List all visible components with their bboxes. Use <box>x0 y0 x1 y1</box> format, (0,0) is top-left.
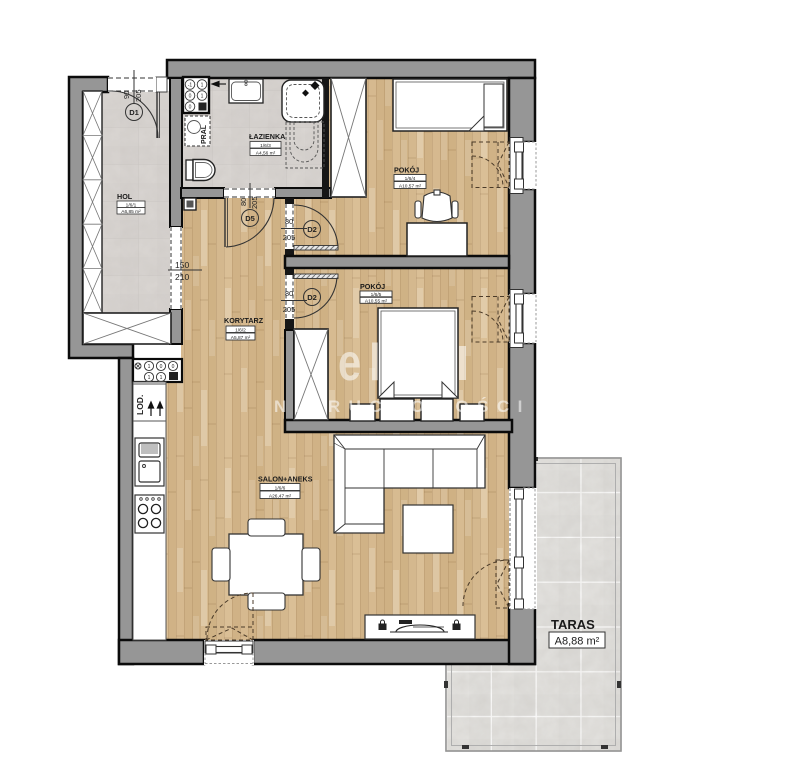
svg-text:0: 0 <box>189 94 192 100</box>
svg-text:D2: D2 <box>307 293 317 302</box>
svg-text:D2: D2 <box>307 225 317 234</box>
svg-text:210: 210 <box>175 272 189 282</box>
svg-text:HOL: HOL <box>117 192 133 201</box>
svg-text:1: 1 <box>148 364 151 370</box>
svg-text:POKÓJ: POKÓJ <box>394 166 419 175</box>
svg-text:NIERUCHOMOŚCI: NIERUCHOMOŚCI <box>274 397 531 416</box>
svg-text:D1: D1 <box>129 108 139 117</box>
svg-text:PRAL: PRAL <box>201 124 208 144</box>
svg-text:KORYTARZ: KORYTARZ <box>224 316 264 325</box>
svg-text:205: 205 <box>283 233 296 242</box>
svg-text:LOD.: LOD. <box>135 395 145 415</box>
svg-text:80: 80 <box>239 198 248 206</box>
svg-text:A26,47 m²: A26,47 m² <box>269 493 292 499</box>
svg-text:1: 1 <box>148 375 151 381</box>
svg-text:D5: D5 <box>245 214 255 223</box>
svg-text:A4,56 m²: A4,56 m² <box>256 150 276 156</box>
svg-text:POKÓJ: POKÓJ <box>360 282 385 291</box>
svg-text:205: 205 <box>134 89 143 102</box>
svg-text:ŁAZIENKA: ŁAZIENKA <box>249 132 285 141</box>
svg-text:1/6/2: 1/6/2 <box>235 327 246 333</box>
svg-text:TARAS: TARAS <box>551 617 595 632</box>
svg-text:150: 150 <box>175 260 189 270</box>
svg-text:elite: elite <box>338 333 461 392</box>
svg-text:0: 0 <box>189 105 192 111</box>
svg-text:0: 0 <box>172 364 175 370</box>
svg-text:205: 205 <box>250 196 259 209</box>
svg-text:1: 1 <box>201 83 204 89</box>
svg-text:A5,87 m²: A5,87 m² <box>231 335 251 341</box>
svg-text:0: 0 <box>160 364 163 370</box>
svg-text:SALON+ANEKS: SALON+ANEKS <box>258 475 313 484</box>
svg-text:90: 90 <box>122 91 131 99</box>
svg-text:80: 80 <box>285 289 293 298</box>
svg-text:A10,55 m²: A10,55 m² <box>365 298 388 304</box>
svg-text:80: 80 <box>285 217 293 226</box>
svg-text:1/6/3: 1/6/3 <box>260 143 271 149</box>
svg-text:1/6/6: 1/6/6 <box>275 485 286 491</box>
svg-text:1: 1 <box>160 375 163 381</box>
svg-text:A10,57 m²: A10,57 m² <box>399 183 422 189</box>
svg-text:A8,88 m²: A8,88 m² <box>555 636 600 648</box>
svg-text:-1: -1 <box>188 83 193 89</box>
svg-text:A6,85 m²: A6,85 m² <box>121 209 141 215</box>
svg-text:1/6/4: 1/6/4 <box>405 176 416 182</box>
svg-text:205: 205 <box>283 305 296 314</box>
svg-text:1: 1 <box>201 94 204 100</box>
